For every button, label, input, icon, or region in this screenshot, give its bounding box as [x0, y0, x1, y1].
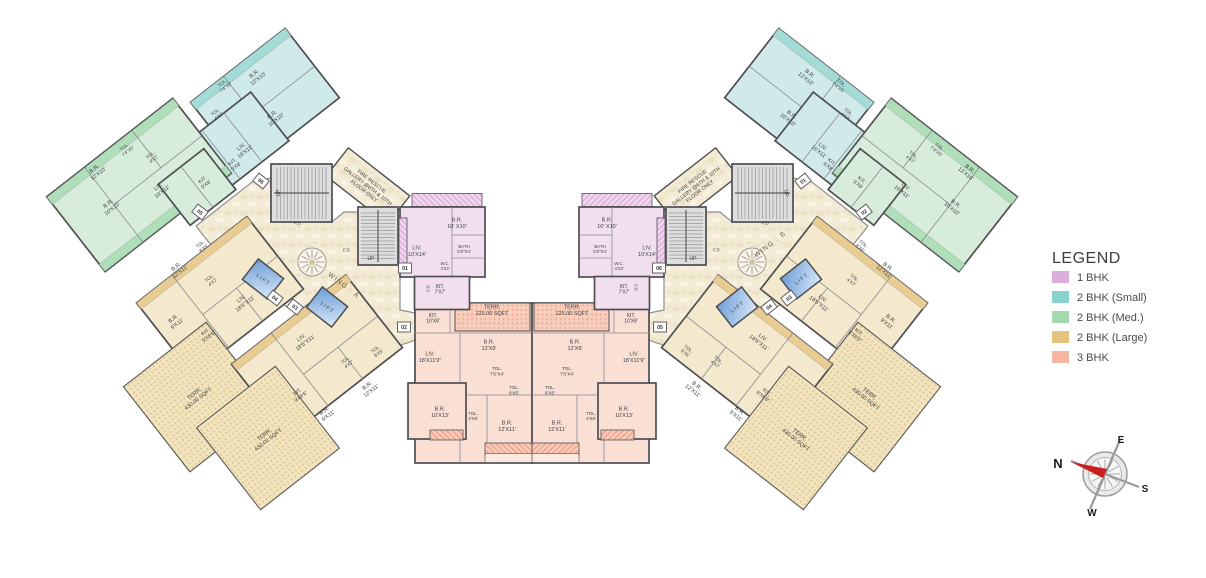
room-label: TOL.4'X8' [586, 411, 596, 421]
room-label-line: 4'X3' [440, 266, 449, 271]
room-label: W.C.4'X3' [614, 261, 623, 271]
unit-3bhk-balcony-strip-2-wing-a [430, 430, 463, 440]
unit-number-badge: 05 [654, 322, 667, 332]
staircase-wing-b [666, 207, 706, 265]
room-label-line: B.R. [570, 340, 581, 346]
room-label-line: LIV. [629, 352, 639, 358]
room-label-line: UP [276, 189, 282, 197]
staircase-wing-a [358, 207, 398, 265]
room-label: UP [782, 190, 788, 198]
room-label-line: 7'6"X4' [560, 371, 574, 376]
unit-3bhk-balcony-strip-2-wing-b [601, 430, 634, 440]
compass-label-w: W [1087, 508, 1097, 519]
room-label: TOL.7'6"X4' [560, 366, 574, 376]
room-label: UP [276, 189, 282, 197]
floor-plan-drawing: 010602050304040305020601B.R.12'X10'B.R.1… [47, 28, 1018, 509]
room-label: B.R.12'X11' [359, 378, 381, 399]
unit-1bhk-top-band-wing-a [412, 194, 482, 207]
unit-number: 01 [402, 266, 408, 272]
unit-3bhk-balcony-strip-2 [601, 430, 634, 440]
unit-1bhk-side-band-wing-a [399, 218, 407, 268]
legend-title: LEGEND [1052, 250, 1121, 267]
room-label-line: 125.00 SQFT [475, 311, 509, 317]
room-label: F.D. [343, 248, 351, 253]
room-label-line: 10'X14' [408, 252, 426, 258]
room-label: B.R.12'X11' [684, 378, 706, 399]
room-label-line: UP [782, 190, 788, 198]
legend-swatch-2bhk-small [1052, 291, 1069, 303]
medallion-hub [749, 259, 755, 265]
room-label-line: B.R. [502, 421, 513, 427]
unit-3bhk-balcony-strip-2 [430, 430, 463, 440]
room-label-line: B.R. [619, 407, 630, 413]
room-label: F.D. [294, 221, 302, 226]
room-label-line: 12'X9' [482, 346, 497, 352]
room-label-line: 4'X8' [586, 416, 596, 421]
room-label-line: B.R. [552, 421, 563, 427]
room-label-line: 7'X7' [619, 290, 630, 296]
legend-swatch-1bhk [1052, 271, 1069, 283]
unit-1bhk-side-band [657, 218, 665, 268]
room-label-line: UP [368, 256, 376, 262]
room-label-line: 4'X3' [614, 266, 623, 271]
room-label-line: 125.00 SQFT [555, 311, 589, 317]
room-label-line: 10'X8' [624, 319, 638, 325]
unit-number-badge: 06 [653, 263, 666, 273]
room-label-line: F.D. [294, 221, 302, 226]
room-label-line: TOL. [492, 366, 502, 371]
compass-label-n: N [1053, 456, 1062, 471]
room-label-line: LIV. [642, 246, 652, 252]
room-label-line: B.R. [452, 218, 463, 224]
room-label-line: B.R. [602, 218, 613, 224]
room-label-line: UP [690, 256, 698, 262]
unit-1bhk-top-band [412, 194, 482, 207]
compass-label-s: S [1142, 484, 1149, 495]
medallion-hub [309, 259, 315, 265]
unit-number-badge: 02 [398, 322, 411, 332]
room-label-line: F.D. [425, 284, 430, 291]
room-label-line: 4'X8' [468, 416, 478, 421]
unit-1bhk-side-band-wing-b [657, 218, 665, 268]
room-label-line: 7'6"X4' [490, 371, 504, 376]
room-label-line: TERR. [564, 305, 581, 311]
unit-number: 06 [656, 266, 662, 272]
room-label-line: 7'X7' [435, 290, 446, 296]
unit-3bhk-apron-wing-a [485, 454, 532, 463]
legend-label-2bhk-med: 2 BHK (Med.) [1077, 312, 1144, 324]
room-label: TOL.8'X5' [545, 385, 555, 395]
floor-plan-canvas: 010602050304040305020601B.R.12'X10'B.R.1… [0, 0, 1206, 578]
unit-1bhk-top-band [582, 194, 652, 207]
room-label: KIT.7'X7' [435, 284, 446, 296]
unit-1bhk-top-band-wing-b [582, 194, 652, 207]
room-label-line: F.D. [343, 248, 351, 253]
legend-label-2bhk-large: 2 BHK (Large) [1077, 332, 1147, 344]
room-label: F.D. [634, 284, 639, 291]
legend-swatch-2bhk-med [1052, 311, 1069, 323]
unit-3bhk-apron-wing-b [532, 454, 579, 463]
room-label-line: 5'3"X4' [593, 249, 607, 254]
room-label: TOL.7'6"X4' [490, 366, 504, 376]
room-label: B.R.12'X9' [482, 340, 497, 352]
room-label-line: F.D. [713, 248, 721, 253]
room-label-line: F.D. [634, 284, 639, 291]
room-label: KIT.7'X7' [619, 284, 630, 296]
room-label-line: 18'X11'9" [419, 358, 442, 364]
room-label-line: 12'X11' [498, 427, 516, 433]
unit-3bhk-apron [485, 454, 532, 463]
room-label-line: LIV. [425, 352, 435, 358]
legend-swatch-3bhk [1052, 351, 1069, 363]
room-label-line: TOL. [562, 366, 572, 371]
unit-number: 02 [401, 325, 407, 331]
room-label: W.C.4'X3' [440, 261, 449, 271]
room-label: TOL.8'X5' [509, 385, 519, 395]
room-label-line: 10'X14' [638, 252, 656, 258]
unit-number-badge: 01 [399, 263, 412, 273]
room-label: F.D. [762, 221, 770, 226]
room-label-line: 10' X10' [447, 224, 467, 230]
room-label-line: LIV. [412, 246, 422, 252]
unit-1bhk-side-band [399, 218, 407, 268]
room-label-line: 12'X9' [568, 346, 583, 352]
room-label-line: 10' X10' [597, 224, 617, 230]
legend-label-2bhk-small: 2 BHK (Small) [1077, 292, 1147, 304]
room-label: UP [368, 256, 376, 262]
room-label-line: TERR. [484, 305, 501, 311]
room-label: BATH5'3"X4' [457, 244, 471, 254]
room-label-line: 8'X5' [545, 390, 555, 395]
room-label-line: 10'X8' [426, 319, 440, 325]
room-label: BATH5'3"X4' [593, 244, 607, 254]
room-label-line: 10'X13' [615, 413, 633, 419]
room-label: UP [690, 256, 698, 262]
legend: LEGEND 1 BHK 2 BHK (Small) 2 BHK (Med.) … [1052, 250, 1147, 364]
unit-number: 05 [657, 325, 663, 331]
floor-plan-page: 010602050304040305020601B.R.12'X10'B.R.1… [0, 0, 1206, 578]
room-label: B.R.12'X9' [568, 340, 583, 352]
compass-rose: N E S W [1053, 435, 1148, 519]
room-label-line: B.R. [484, 340, 495, 346]
room-label-line: 10'X13' [431, 413, 449, 419]
room-label-line: 12'X11' [548, 427, 566, 433]
room-label-line: B.R. [435, 407, 446, 413]
room-label: TOL.4'X8' [468, 411, 478, 421]
room-label-line: 8'X5' [509, 390, 519, 395]
legend-label-3bhk: 3 BHK [1077, 352, 1109, 364]
room-label-line: TOL. [545, 385, 555, 390]
unit-3bhk-apron [532, 454, 579, 463]
room-label-line: 18'X11'9" [623, 358, 646, 364]
legend-label-1bhk: 1 BHK [1077, 272, 1109, 284]
compass-label-e: E [1118, 435, 1125, 446]
room-label-line: 5'3"X4' [457, 249, 471, 254]
legend-swatch-2bhk-large [1052, 331, 1069, 343]
room-label-line: F.D. [762, 221, 770, 226]
room-label: F.D. [425, 284, 430, 291]
room-label: F.D. [713, 248, 721, 253]
room-label-line: TOL. [509, 385, 519, 390]
